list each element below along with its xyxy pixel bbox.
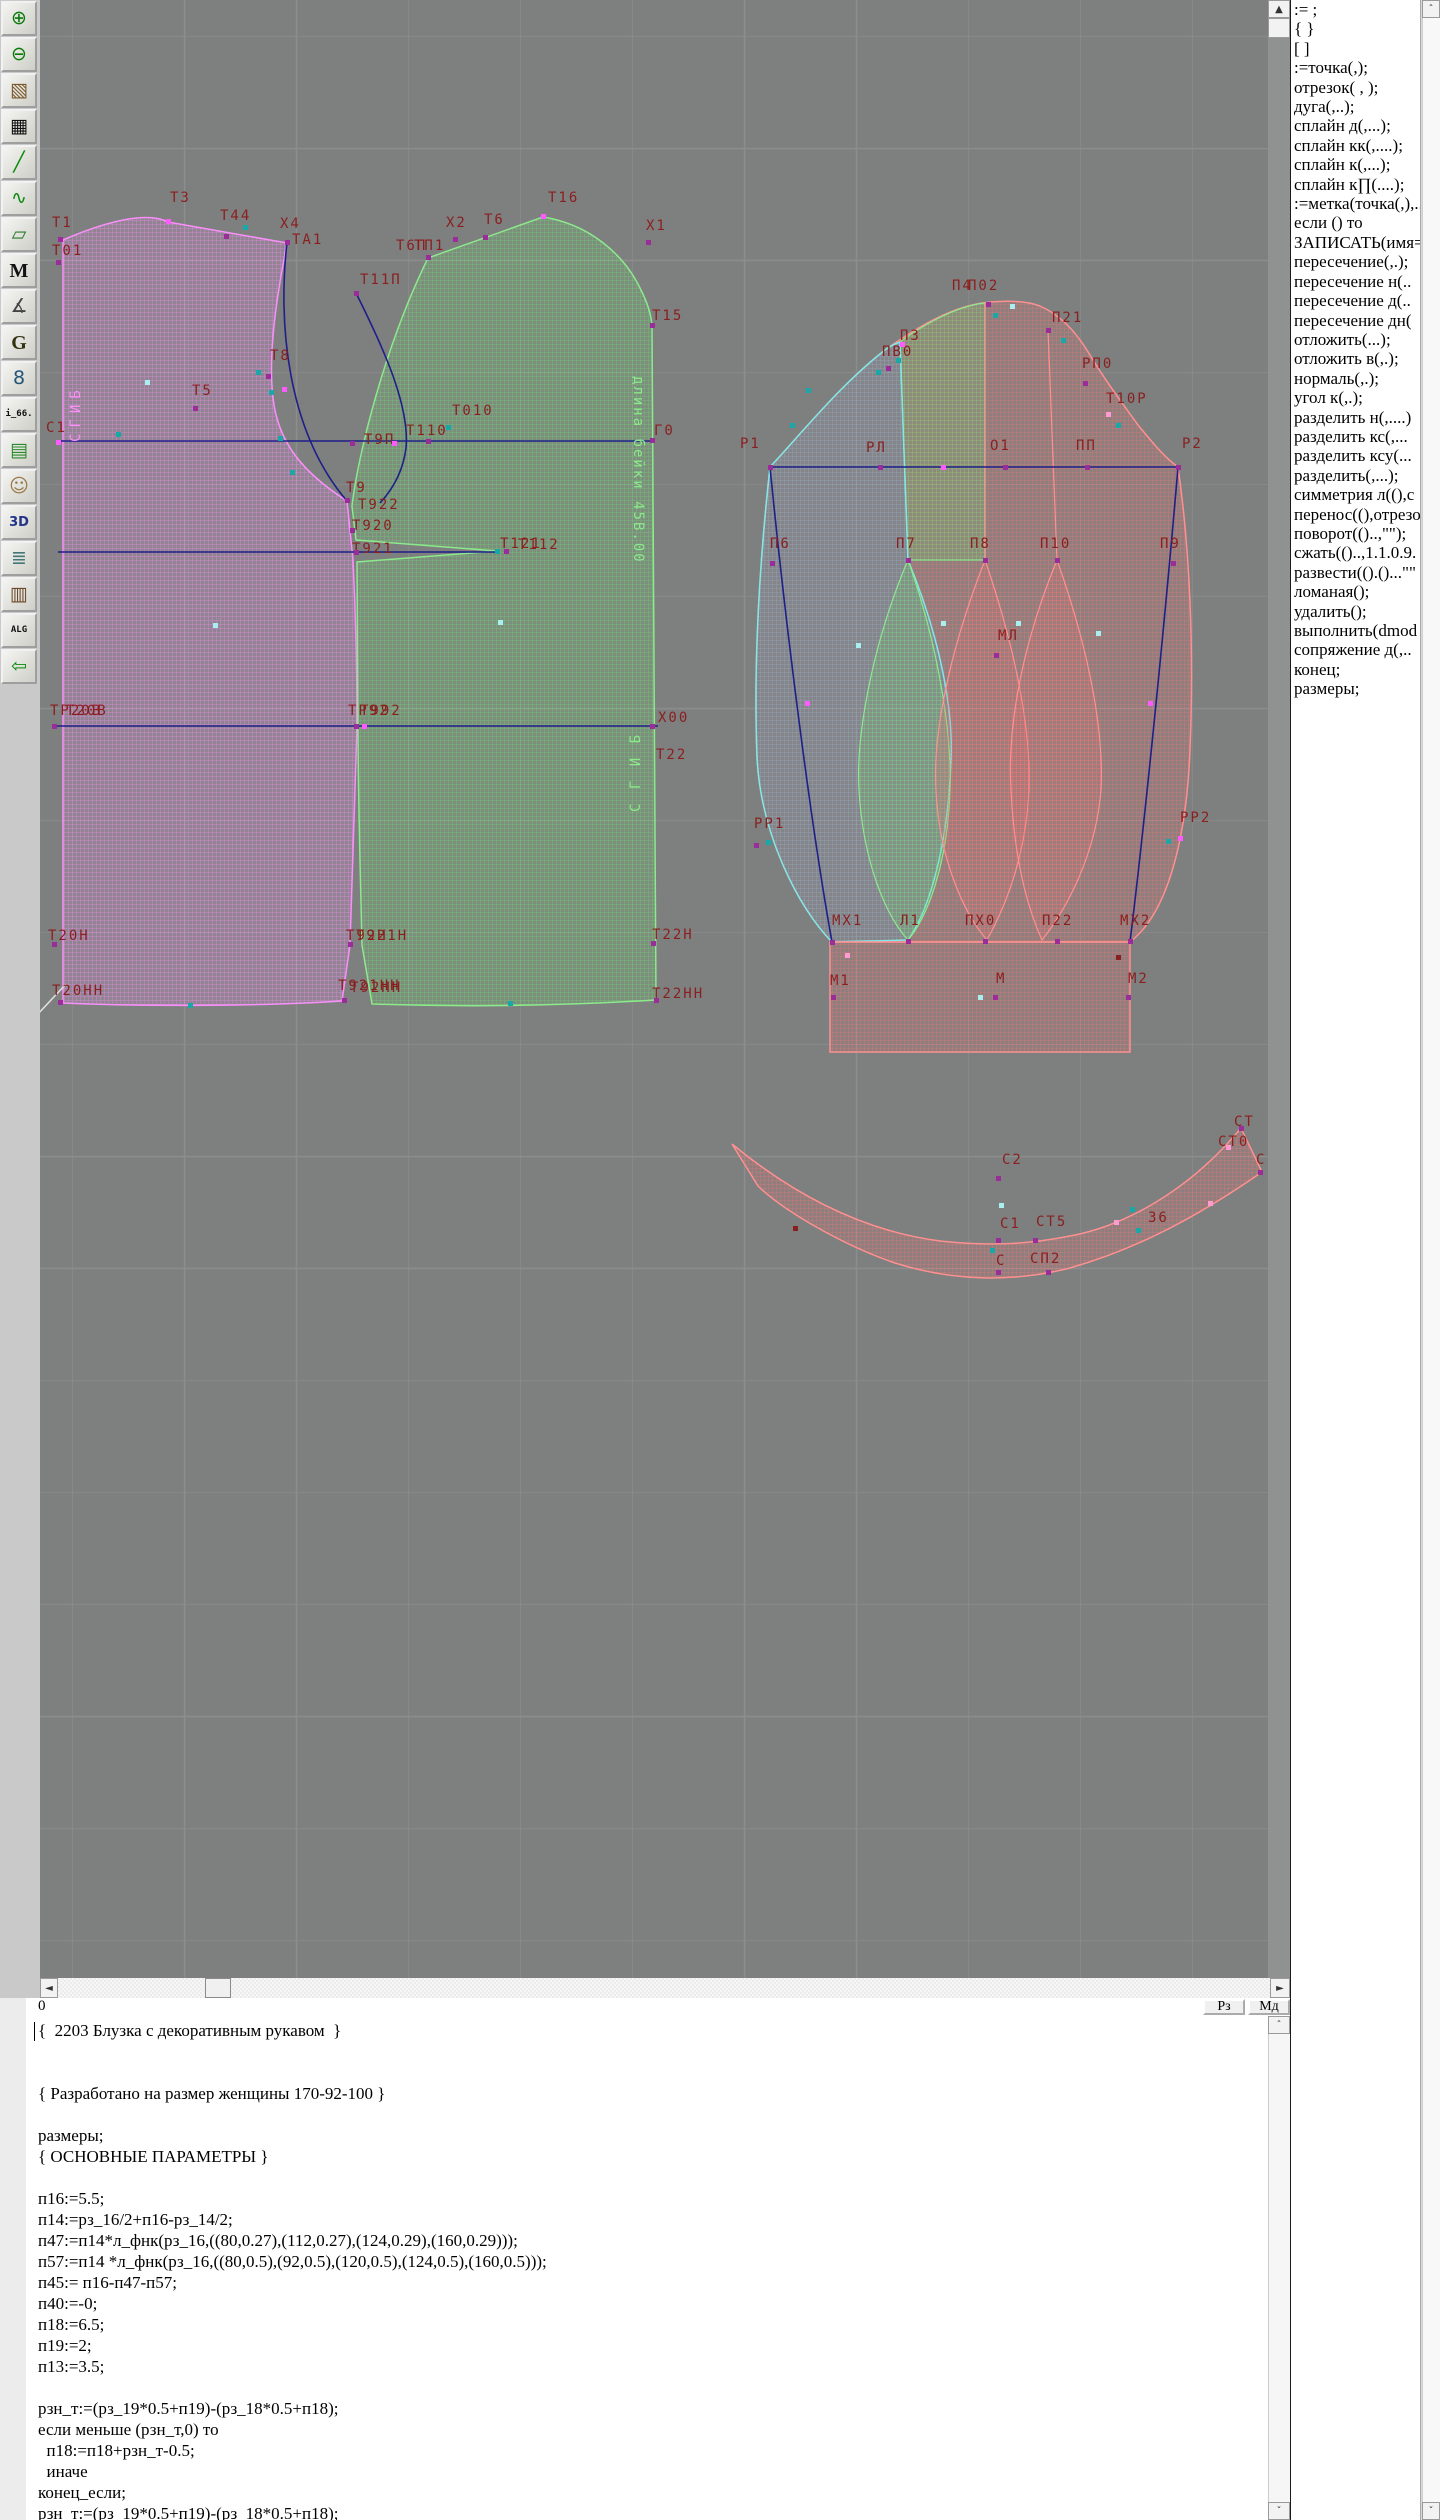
command-item[interactable]: перенос((),отрезо <box>1291 505 1420 524</box>
rotated-label: С Г И Б <box>628 732 644 812</box>
pattern-point <box>831 995 836 1000</box>
m-text-icon[interactable]: M <box>1 253 37 288</box>
command-item[interactable]: отрезок( , ); <box>1291 78 1420 97</box>
pattern-point <box>1239 1126 1244 1131</box>
point-label: С2 <box>1002 1152 1023 1168</box>
pattern-point <box>1171 561 1176 566</box>
point-label: С1 <box>46 420 67 436</box>
point-label: Т920 <box>352 518 394 534</box>
pattern-point <box>993 313 998 318</box>
pattern-point <box>446 425 451 430</box>
command-item[interactable]: дуга(,..); <box>1291 97 1420 116</box>
canvas-vertical-scroll-thumb[interactable] <box>1268 18 1290 38</box>
point-label: Х1 <box>646 218 667 234</box>
pattern-point <box>806 388 811 393</box>
pattern-point <box>941 465 946 470</box>
pattern-point <box>193 406 198 411</box>
pattern-point <box>1114 1220 1119 1225</box>
pattern-point <box>994 653 999 658</box>
pattern-point <box>116 432 121 437</box>
i66-icon: i_66. <box>5 410 32 419</box>
pattern-point <box>290 470 295 475</box>
zoom-out-icon: ⊖ <box>11 45 27 64</box>
left-gutter <box>0 1998 26 2520</box>
pattern-point <box>1046 1270 1051 1275</box>
point-label: ТП1 <box>414 238 445 254</box>
segment-icon: ╱ <box>13 153 24 172</box>
pattern-point <box>990 1248 995 1253</box>
zoom-in-icon[interactable]: ⊕ <box>1 1 37 36</box>
command-item[interactable]: ЗАПИСАТЬ(имя= <box>1291 233 1420 252</box>
point-label: Л1 <box>900 913 921 929</box>
command-item[interactable]: угол к(,.); <box>1291 388 1420 407</box>
drafting-tools-icon: ∡ <box>10 297 27 316</box>
point-label: Т15 <box>652 308 683 324</box>
exit-icon: ⇦ <box>11 657 27 676</box>
rotated-label: длина бейки 45В.00 <box>630 376 646 564</box>
point-label: Т112 <box>518 537 560 553</box>
pattern-point <box>350 528 355 533</box>
point-label: П9 <box>1160 536 1181 552</box>
point-label: Т8 <box>270 348 291 364</box>
rotated-label: СГИБ <box>68 384 84 442</box>
pattern-point <box>993 995 998 1000</box>
segment-icon[interactable]: ╱ <box>1 145 37 180</box>
point-label: РП0 <box>1082 356 1113 372</box>
command-item[interactable]: сжать(()..,1.1.0.9. <box>1291 543 1420 562</box>
pattern-point <box>269 390 274 395</box>
point-label: Т92НН <box>350 980 402 996</box>
point-label: П6 <box>770 536 791 552</box>
pattern-point <box>830 940 835 945</box>
pattern-point <box>876 370 881 375</box>
command-item[interactable]: поворот(()..,""); <box>1291 524 1420 543</box>
point-label: Т44 <box>220 208 251 224</box>
point-label: З6 <box>1148 1210 1169 1226</box>
point-label: Т01 <box>52 243 83 259</box>
pattern-point <box>1178 836 1183 841</box>
pattern-point <box>983 939 988 944</box>
pattern-point <box>1055 558 1060 563</box>
pattern-point <box>1061 338 1066 343</box>
command-item[interactable]: конец; <box>1291 660 1420 679</box>
pattern-point <box>541 214 546 219</box>
point-label: Т5 <box>192 383 213 399</box>
command-list-panel: := ;{ }[ ]:=точка(,);отрезок( , );дуга(,… <box>1290 0 1420 2520</box>
curve-sheet-icon: ∿ <box>11 189 27 208</box>
pattern-point <box>354 291 359 296</box>
command-scroll-up-icon[interactable]: ˆ <box>1422 0 1440 18</box>
pattern-point <box>483 235 488 240</box>
pattern-point <box>878 465 883 470</box>
pattern-point <box>996 1270 1001 1275</box>
pattern-point <box>906 558 911 563</box>
pattern-point <box>1130 1207 1135 1212</box>
pattern-point <box>350 441 355 446</box>
point-label: Т9П <box>364 432 395 448</box>
exit-icon[interactable]: ⇦ <box>1 649 37 684</box>
m-text-icon: M <box>10 261 29 281</box>
point-label: С <box>1256 1152 1266 1168</box>
pattern-point <box>52 942 57 947</box>
pattern-point <box>498 620 503 625</box>
command-item[interactable]: ломаная(); <box>1291 582 1420 601</box>
point-label: Х00 <box>658 710 689 726</box>
point-label: МЛ <box>998 628 1019 644</box>
pattern-point <box>770 561 775 566</box>
pattern-point <box>754 843 759 848</box>
point-label: П02 <box>968 278 999 294</box>
i66-icon[interactable]: i_66. <box>1 397 37 432</box>
pattern-point <box>650 438 655 443</box>
pattern-point <box>348 942 353 947</box>
pattern-cad-window: { "window": {"title": "Pattern design CA… <box>0 0 1440 2520</box>
pattern-point <box>856 643 861 648</box>
command-item[interactable]: пересечение дн( <box>1291 311 1420 330</box>
point-label: Т16 <box>548 190 579 206</box>
point-label: СТ <box>1234 1114 1255 1130</box>
pattern-point <box>1208 1201 1213 1206</box>
point-label: П10 <box>1040 536 1071 552</box>
point-label: РР1 <box>754 816 785 832</box>
pattern-point <box>1055 939 1060 944</box>
text-cursor <box>34 2022 35 2041</box>
code-vertical-scrollbar[interactable] <box>1268 2016 1291 2520</box>
command-item[interactable]: := ; <box>1291 0 1420 19</box>
pattern-point <box>1016 621 1021 626</box>
command-item[interactable]: разделить(,...); <box>1291 466 1420 485</box>
pattern-point <box>886 366 891 371</box>
pattern-point <box>345 498 350 503</box>
books-icon[interactable]: ▥ <box>1 577 37 612</box>
command-item[interactable]: сплайн д(,...); <box>1291 116 1420 135</box>
point-label: Т1 <box>52 215 73 231</box>
pattern-preview-icon[interactable]: ▧ <box>1 73 37 108</box>
pattern-point <box>426 439 431 444</box>
ruler-icon[interactable]: 8 <box>1 361 37 396</box>
point-label: Т9 <box>346 480 367 496</box>
pattern-point <box>58 1000 63 1005</box>
point-label: П8 <box>970 536 991 552</box>
command-item[interactable]: :=точка(,); <box>1291 58 1420 77</box>
pattern-point <box>790 423 795 428</box>
pattern-point <box>996 1176 1001 1181</box>
point-label: Т110 <box>406 423 448 439</box>
alg-icon[interactable]: ALG <box>1 613 37 648</box>
command-item[interactable]: отложить в(,.); <box>1291 349 1420 368</box>
command-item[interactable]: выполнить(dmod <box>1291 621 1420 640</box>
point-label: Т6 <box>484 212 505 228</box>
canvas-scroll-left-icon[interactable]: ◄ <box>40 1978 58 1998</box>
pattern-point <box>58 237 63 242</box>
pattern-point <box>224 234 229 239</box>
threed-icon: 3D <box>9 516 29 529</box>
point-label: МХ1 <box>832 913 863 929</box>
pattern-point <box>354 724 359 729</box>
pattern-point <box>651 941 656 946</box>
command-item[interactable]: сплайн кк(,....); <box>1291 136 1420 155</box>
pattern-point <box>845 953 850 958</box>
status-value: 0 <box>38 1998 46 2015</box>
pattern-point <box>805 701 810 706</box>
pattern-point <box>362 724 367 729</box>
pattern-point <box>256 370 261 375</box>
command-item[interactable]: пересечение д(.. <box>1291 291 1420 310</box>
pattern-point <box>282 387 287 392</box>
pattern-point <box>243 225 248 230</box>
point-label: Т922 <box>358 497 400 513</box>
threed-icon[interactable]: 3D <box>1 505 37 540</box>
pattern-point <box>278 436 283 441</box>
pattern-point <box>766 840 771 845</box>
pattern-point <box>983 558 988 563</box>
pattern-point <box>1116 423 1121 428</box>
pattern-point <box>504 549 509 554</box>
code-editor[interactable]: { 2203 Блузка с декоративным рукавом } {… <box>26 2016 1268 2520</box>
pattern-point <box>1085 465 1090 470</box>
point-label: ТА1 <box>292 232 323 248</box>
pattern-point <box>354 550 359 555</box>
pattern-point <box>1033 1238 1038 1243</box>
pattern-point <box>52 724 57 729</box>
pattern-point <box>941 621 946 626</box>
pattern-point <box>285 240 290 245</box>
rz-button[interactable]: Рз <box>1203 1999 1245 2015</box>
pattern-point <box>1176 465 1181 470</box>
zoom-in-icon: ⊕ <box>11 9 27 28</box>
g-text-icon[interactable]: G <box>1 325 37 360</box>
point-label: Т921Н <box>356 928 408 944</box>
pattern-point <box>166 219 171 224</box>
point-label: Т20НН <box>52 983 104 999</box>
point-label: ПХ0 <box>965 913 996 929</box>
command-item[interactable]: сплайн к∏(....); <box>1291 175 1420 194</box>
code-scroll-up-icon[interactable]: ˆ <box>1268 2016 1290 2034</box>
point-label: Т22 <box>656 747 687 763</box>
photo-icon[interactable]: ☺ <box>1 469 37 504</box>
pattern-point <box>1166 839 1171 844</box>
command-item[interactable]: :=метка(точка(,),.. <box>1291 194 1420 213</box>
command-item[interactable]: симметрия л((),с <box>1291 485 1420 504</box>
point-label: Т010 <box>452 403 494 419</box>
command-item[interactable]: развести(().()..."" <box>1291 563 1420 582</box>
pattern-point <box>453 237 458 242</box>
program-text: { 2203 Блузка с декоративным рукавом } {… <box>26 2016 1268 2520</box>
point-label: С <box>996 1253 1006 1269</box>
pattern-point <box>1116 955 1121 960</box>
point-label: Т22НН <box>652 986 704 1002</box>
table-icon: ▤ <box>10 441 28 460</box>
command-item[interactable]: удалить(); <box>1291 602 1420 621</box>
pattern-point <box>768 465 773 470</box>
point-label: П21 <box>1052 310 1083 326</box>
pattern-point <box>793 1226 798 1231</box>
point-label: МХ2 <box>1120 913 1151 929</box>
pattern-point <box>213 623 218 628</box>
piece-outline-icon: ▱ <box>12 225 27 244</box>
curve-sheet-icon[interactable]: ∿ <box>1 181 37 216</box>
point-label: СТ0 <box>1218 1134 1249 1150</box>
point-label: СП2 <box>1030 1251 1061 1267</box>
pattern-point <box>650 323 655 328</box>
point-label: РР2 <box>1180 810 1211 826</box>
left-toolbar: ⊕⊖▧▦╱∿▱M∡G8i_66.▤☺3D≣▥ALG⇦ <box>0 0 41 1998</box>
pattern-point <box>1106 412 1111 417</box>
point-label: Т3 <box>170 190 191 206</box>
pattern-point <box>986 302 991 307</box>
pattern-point <box>1136 1228 1141 1233</box>
canvas-vertical-scrollbar[interactable] <box>1268 0 1290 1978</box>
point-label: РЛ <box>866 440 887 456</box>
back-bodice-piece[interactable] <box>63 217 357 1005</box>
pattern-point <box>650 724 655 729</box>
command-item[interactable]: сопряжение д(,.. <box>1291 640 1420 659</box>
pattern-point <box>1003 465 1008 470</box>
point-label: Т20В <box>66 703 108 719</box>
pattern-point <box>392 441 397 446</box>
command-item[interactable]: разделить кс(,... <box>1291 427 1420 446</box>
pattern-point <box>1010 304 1015 309</box>
list-icon: ≣ <box>11 549 27 568</box>
pattern-point <box>266 374 271 379</box>
point-label: Т11П <box>360 272 402 288</box>
canvas-scroll-right-icon[interactable]: ► <box>1270 1978 1290 1998</box>
pattern-point <box>1148 701 1153 706</box>
command-item[interactable]: размеры; <box>1291 679 1420 698</box>
point-label: П22 <box>1042 913 1073 929</box>
grid-icon: ▦ <box>10 117 28 136</box>
books-icon: ▥ <box>10 585 28 604</box>
point-label: Р1 <box>740 436 761 452</box>
pattern-point <box>1083 381 1088 386</box>
command-item[interactable]: пересечение н(.. <box>1291 272 1420 291</box>
point-label: П7 <box>896 536 917 552</box>
pattern-point <box>495 549 500 554</box>
status-row: 0 Рз Мд <box>26 1998 1290 2016</box>
piece-outline-icon[interactable]: ▱ <box>1 217 37 252</box>
pattern-point <box>145 380 150 385</box>
command-scroll-down-icon[interactable]: ˇ <box>1422 2502 1440 2520</box>
command-item[interactable]: разделить н(,....) <box>1291 408 1420 427</box>
code-scroll-down-icon[interactable]: ˇ <box>1268 2502 1290 2520</box>
drafting-tools-icon[interactable]: ∡ <box>1 289 37 324</box>
point-label: М1 <box>830 973 851 989</box>
md-button[interactable]: Мд <box>1248 1999 1290 2015</box>
command-item[interactable]: если () то <box>1291 213 1420 232</box>
g-text-icon: G <box>11 333 27 353</box>
point-label: Т992 <box>360 703 402 719</box>
canvas-scroll-up-icon[interactable]: ▲ <box>1268 0 1290 18</box>
command-item[interactable]: { } <box>1291 19 1420 38</box>
pattern-point <box>1226 1145 1231 1150</box>
ruler-icon: 8 <box>13 369 25 388</box>
pattern-point <box>56 260 61 265</box>
pattern-point <box>1046 328 1051 333</box>
pattern-point <box>978 995 983 1000</box>
pattern-point <box>1258 1170 1263 1175</box>
pattern-point <box>342 998 347 1003</box>
command-item[interactable]: отложить(...); <box>1291 330 1420 349</box>
point-label: Х2 <box>446 215 467 231</box>
point-label: М <box>996 971 1006 987</box>
point-label: Г0 <box>654 423 675 439</box>
pattern-point <box>1126 995 1131 1000</box>
command-item[interactable]: сплайн к(,...); <box>1291 155 1420 174</box>
point-label: М2 <box>1128 971 1149 987</box>
pattern-point <box>426 255 431 260</box>
point-label: Т10Р <box>1106 391 1148 407</box>
point-label: Х4 <box>280 216 301 232</box>
command-item[interactable]: нормаль(,.); <box>1291 369 1420 388</box>
point-label: О1 <box>990 438 1011 454</box>
pattern-point <box>900 342 905 347</box>
zoom-out-icon[interactable]: ⊖ <box>1 37 37 72</box>
pattern-point <box>56 440 61 445</box>
alg-icon: ALG <box>11 626 27 635</box>
point-label: С1 <box>1000 1216 1021 1232</box>
grid-icon[interactable]: ▦ <box>1 109 37 144</box>
photo-icon: ☺ <box>9 477 29 496</box>
pattern-point <box>1096 631 1101 636</box>
pattern-preview-icon: ▧ <box>10 81 28 100</box>
pattern-point <box>906 939 911 944</box>
command-item[interactable]: разделить ксу(... <box>1291 446 1420 465</box>
pattern-point <box>1128 939 1133 944</box>
list-icon[interactable]: ≣ <box>1 541 37 576</box>
point-label: СТ5 <box>1036 1214 1067 1230</box>
point-label: ПП <box>1076 438 1097 454</box>
pattern-point <box>996 1238 1001 1243</box>
pattern-point <box>896 358 901 363</box>
pattern-point <box>508 1001 513 1006</box>
command-item[interactable]: пересечение(,.); <box>1291 252 1420 271</box>
drawing-canvas[interactable]: Т1Т01Т3Т44Х4ТА1Т11ПТ8Т5С1Т010Т110Т9ПТ9Т9… <box>40 0 1268 1978</box>
pattern-point <box>654 998 659 1003</box>
pattern-point <box>188 1003 193 1008</box>
table-icon[interactable]: ▤ <box>1 433 37 468</box>
pattern-point <box>999 1203 1004 1208</box>
pattern-point <box>646 240 651 245</box>
command-list-scrollbar[interactable] <box>1422 0 1440 2520</box>
front-bodice-piece[interactable] <box>352 217 656 1006</box>
canvas-horizontal-scroll-thumb[interactable] <box>205 1978 231 1998</box>
point-label: Т22Н <box>652 927 694 943</box>
point-label: Р2 <box>1182 436 1203 452</box>
command-item[interactable]: [ ] <box>1291 39 1420 58</box>
